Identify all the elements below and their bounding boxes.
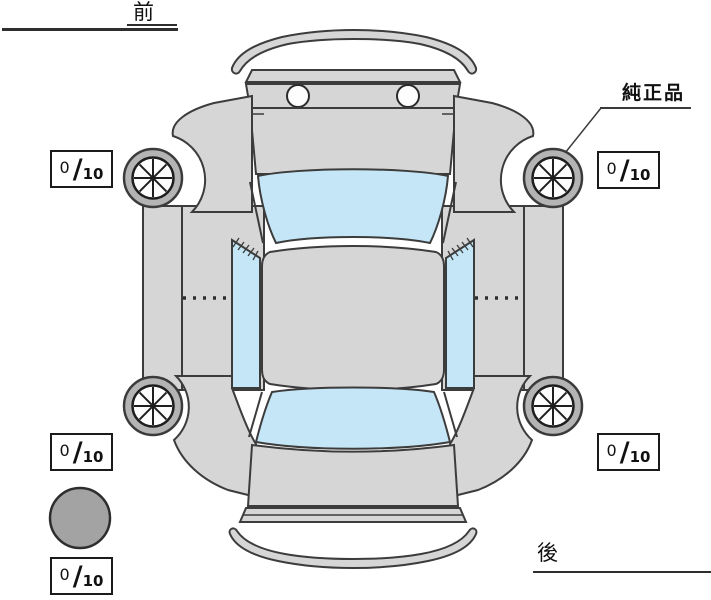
tread-value: 0 [60, 565, 70, 584]
tread-value: 0 [607, 441, 617, 460]
wheel-rear-right [524, 377, 582, 435]
front-cowl-panel [246, 70, 460, 82]
front-label: 前 [133, 2, 154, 23]
tread-slash: / [620, 159, 630, 183]
front-left-fender [173, 96, 252, 212]
windshield [258, 169, 448, 243]
roof [262, 246, 444, 390]
tread-max: 10 [83, 448, 104, 466]
tread-box-rear-left: 0/10 [50, 433, 113, 471]
tread-box-spare: 0/10 [50, 557, 113, 595]
front-bumper [232, 30, 476, 74]
front-right-fender [454, 96, 533, 212]
left-headlight [287, 85, 309, 107]
tread-slash: / [620, 441, 630, 465]
tread-value: 0 [607, 159, 617, 178]
tread-box-rear-right: 0/10 [597, 433, 660, 471]
vehicle-inspection-diagram: 前 後 純正品 0/10 0/10 0/10 0/10 0/10 [0, 0, 711, 600]
genuine-parts-underline [600, 107, 691, 109]
rear-label: 後 [537, 543, 558, 564]
spare-tire [50, 488, 110, 548]
right-side-windows [446, 238, 474, 388]
tread-max: 10 [83, 165, 104, 183]
front-label-underline [127, 24, 177, 26]
tread-value: 0 [60, 158, 70, 177]
headlight-panel [246, 84, 460, 108]
tread-max: 10 [630, 448, 651, 466]
tread-slash: / [73, 441, 83, 465]
wheel-rear-left [124, 377, 182, 435]
rear-window [256, 388, 450, 449]
hood [250, 108, 456, 174]
car-top-view [0, 0, 711, 600]
tread-max: 10 [83, 572, 104, 590]
left-side-windows [232, 238, 260, 388]
tread-slash: / [73, 565, 83, 589]
tread-max: 10 [630, 166, 651, 184]
rear-divider-line [533, 571, 711, 573]
tread-box-front-left: 0/10 [50, 150, 113, 188]
rear-right-quarter-panel [450, 376, 532, 496]
genuine-parts-label: 純正品 [622, 84, 685, 103]
right-headlight [397, 85, 419, 107]
tread-box-front-right: 0/10 [597, 151, 660, 189]
tread-slash: / [73, 158, 83, 182]
wheel-front-left [124, 149, 182, 207]
rear-bumper [230, 528, 477, 568]
tread-value: 0 [60, 441, 70, 460]
rear-left-quarter-panel [174, 376, 256, 496]
trunk [240, 445, 466, 522]
wheel-front-right [524, 149, 582, 207]
front-divider-line [2, 28, 178, 31]
